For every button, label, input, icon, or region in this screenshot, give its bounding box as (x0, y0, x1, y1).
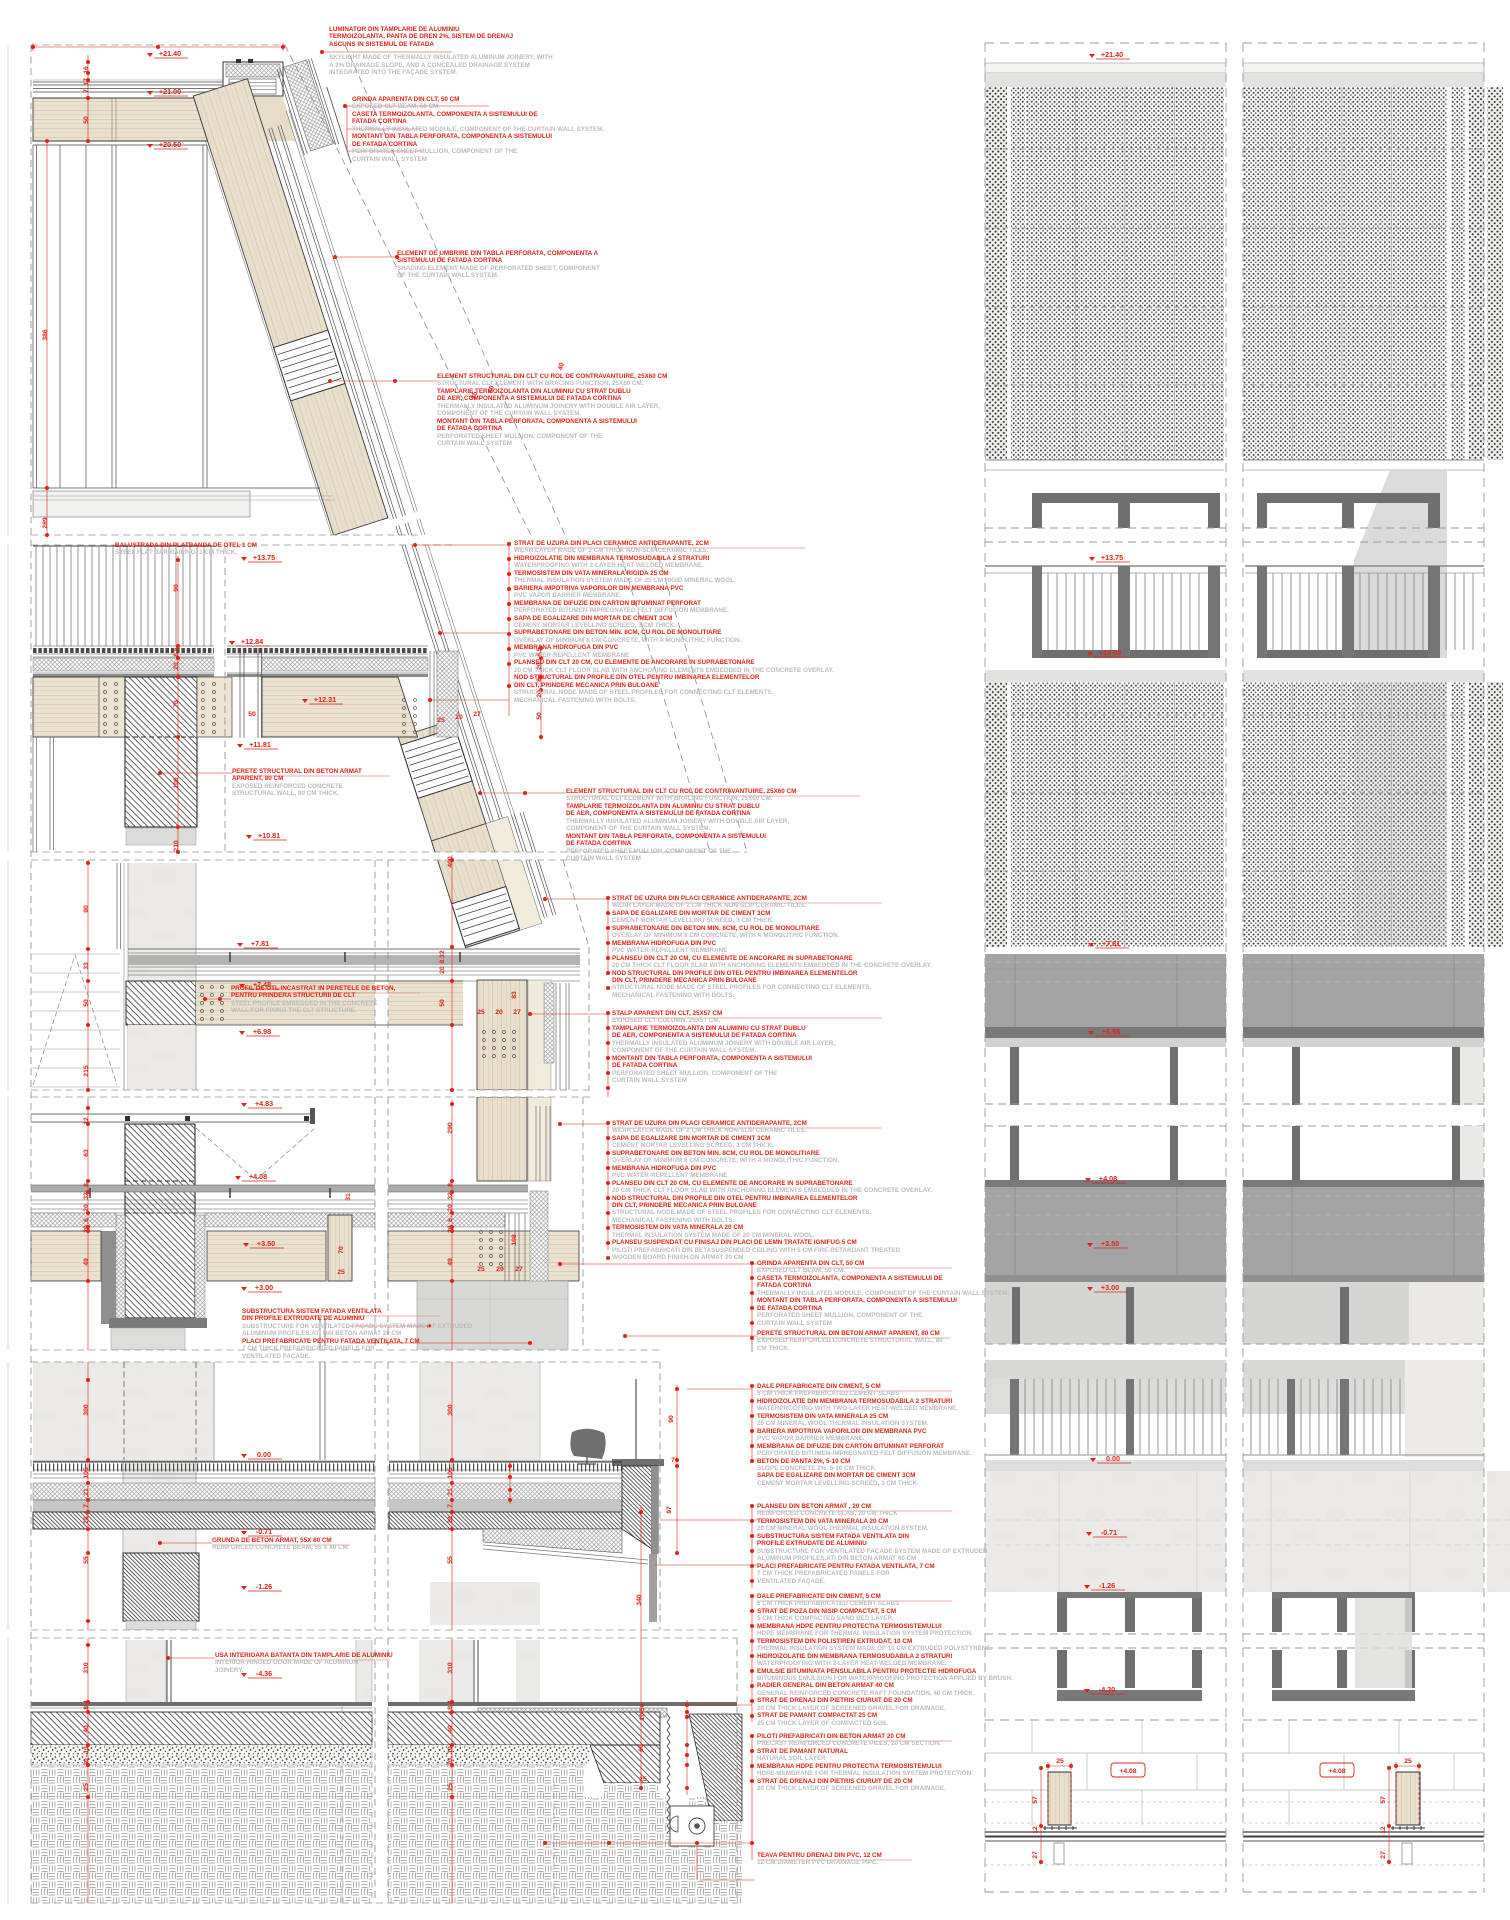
svg-text:32: 32 (447, 1192, 454, 1200)
svg-text:7: 7 (83, 89, 90, 93)
svg-text:40: 40 (83, 1725, 90, 1733)
svg-text:25: 25 (83, 1783, 90, 1791)
svg-text:20: 20 (495, 1009, 503, 1016)
svg-text:25: 25 (477, 1266, 485, 1273)
svg-text:7: 7 (447, 1504, 454, 1508)
svg-text:105: 105 (447, 1467, 454, 1479)
svg-text:+20.50: +20.50 (159, 140, 181, 149)
svg-text:0.00: 0.00 (1106, 1454, 1120, 1463)
svg-text:7: 7 (671, 1457, 675, 1464)
svg-text:50: 50 (83, 999, 90, 1007)
svg-text:+21.40: +21.40 (1101, 50, 1123, 59)
svg-text:+11.81: +11.81 (249, 740, 271, 749)
svg-text:17: 17 (83, 78, 90, 86)
svg-text:20: 20 (447, 1225, 454, 1233)
svg-text:6: 6 (83, 1218, 90, 1222)
svg-text:12: 12 (1032, 1826, 1039, 1834)
svg-text:7: 7 (83, 1504, 90, 1508)
svg-text:+21.00: +21.00 (159, 87, 181, 96)
svg-text:289: 289 (42, 517, 49, 529)
svg-text:49: 49 (83, 1258, 90, 1266)
svg-text:+10.81: +10.81 (258, 831, 280, 840)
svg-text:20: 20 (83, 1758, 90, 1766)
svg-text:+12.84: +12.84 (1099, 648, 1121, 657)
svg-text:12: 12 (83, 1117, 90, 1125)
svg-text:20: 20 (173, 662, 180, 670)
svg-text:8.4: 8.4 (447, 1700, 454, 1710)
svg-text:33: 33 (83, 962, 90, 970)
svg-text:+6.98: +6.98 (253, 1027, 271, 1036)
svg-text:25: 25 (447, 1783, 454, 1791)
svg-text:25: 25 (437, 717, 445, 724)
svg-text:70: 70 (338, 1246, 345, 1254)
svg-text:+7.81: +7.81 (251, 939, 269, 948)
svg-text:27: 27 (513, 1009, 521, 1016)
svg-text:90: 90 (173, 584, 180, 592)
svg-text:20: 20 (439, 966, 446, 974)
svg-text:+3.50: +3.50 (257, 1239, 275, 1248)
svg-text:97: 97 (666, 1506, 673, 1514)
svg-text:12: 12 (1380, 1826, 1387, 1834)
svg-text:8.4: 8.4 (83, 1700, 90, 1710)
svg-text:90: 90 (83, 905, 90, 913)
svg-text:50: 50 (248, 711, 256, 718)
svg-text:57: 57 (1380, 1796, 1387, 1804)
svg-text:20: 20 (447, 1204, 454, 1212)
svg-text:40: 40 (447, 1725, 454, 1733)
svg-text:20: 20 (83, 1225, 90, 1233)
svg-text:10: 10 (83, 1746, 90, 1754)
svg-text:70: 70 (173, 700, 180, 708)
svg-text:90: 90 (668, 1415, 675, 1423)
svg-text:+12.84: +12.84 (241, 637, 263, 646)
svg-text:+3.00: +3.00 (255, 1283, 273, 1292)
svg-text:310: 310 (447, 1662, 454, 1674)
svg-text:20: 20 (83, 1204, 90, 1212)
svg-text:25: 25 (337, 1269, 345, 1276)
svg-text:57: 57 (1032, 1796, 1039, 1804)
svg-text:300: 300 (83, 1404, 90, 1416)
svg-text:32: 32 (83, 1192, 90, 1200)
svg-text:+4.08: +4.08 (1119, 1768, 1136, 1775)
svg-text:21: 21 (83, 1488, 90, 1496)
svg-text:27: 27 (1032, 1851, 1039, 1859)
svg-text:290: 290 (447, 1122, 454, 1134)
svg-text:63: 63 (83, 1149, 90, 1157)
svg-text:25: 25 (1404, 1758, 1412, 1765)
svg-text:+4.08: +4.08 (249, 1172, 267, 1181)
svg-text:+4.83: +4.83 (255, 1099, 273, 1108)
svg-text:-0.71: -0.71 (256, 1527, 272, 1536)
svg-text:100: 100 (173, 777, 180, 789)
svg-text:108: 108 (511, 1234, 518, 1246)
svg-text:50: 50 (536, 712, 543, 720)
svg-text:20: 20 (447, 1758, 454, 1766)
svg-text:+3.00: +3.00 (1101, 1283, 1119, 1292)
svg-text:16: 16 (83, 66, 90, 74)
svg-text:83: 83 (511, 991, 518, 999)
svg-text:49: 49 (447, 1258, 454, 1266)
svg-text:8.5: 8.5 (173, 647, 180, 657)
svg-text:55: 55 (83, 1556, 90, 1564)
svg-text:+7.81: +7.81 (1102, 939, 1120, 948)
svg-text:210: 210 (173, 840, 180, 852)
svg-text:25: 25 (639, 1776, 647, 1783)
svg-text:400: 400 (447, 856, 454, 868)
svg-text:340: 340 (636, 1594, 643, 1606)
svg-text:10: 10 (447, 1746, 454, 1754)
svg-text:215: 215 (83, 1065, 90, 1077)
svg-text:-1.26: -1.26 (256, 1582, 272, 1591)
svg-text:8: 8 (447, 1183, 454, 1187)
svg-text:50: 50 (83, 116, 90, 124)
svg-text:6: 6 (447, 1218, 454, 1222)
svg-text:+12.31: +12.31 (314, 695, 336, 704)
svg-text:28: 28 (447, 1516, 454, 1524)
svg-text:8: 8 (83, 1183, 90, 1187)
svg-text:28: 28 (83, 1516, 90, 1524)
svg-text:31: 31 (345, 1193, 352, 1201)
svg-text:60: 60 (638, 1744, 645, 1752)
svg-text:+4.08: +4.08 (1099, 1174, 1117, 1183)
svg-text:27: 27 (473, 711, 481, 718)
svg-text:27: 27 (515, 1266, 523, 1273)
svg-text:-0.71: -0.71 (1101, 1528, 1117, 1537)
svg-text:40: 40 (557, 362, 566, 372)
svg-text:21: 21 (447, 1488, 454, 1496)
svg-text:27: 27 (1380, 1851, 1387, 1859)
svg-text:-4.20: -4.20 (1099, 1685, 1115, 1694)
svg-text:55: 55 (447, 1556, 454, 1564)
svg-text:25: 25 (477, 1009, 485, 1016)
svg-text:+4.08: +4.08 (1328, 1768, 1345, 1775)
svg-text:310: 310 (83, 1662, 90, 1674)
svg-text:+3.50: +3.50 (1101, 1239, 1119, 1248)
svg-text:25: 25 (1056, 1758, 1064, 1765)
svg-text:0.00: 0.00 (257, 1450, 271, 1459)
svg-text:+6.98: +6.98 (1102, 1027, 1120, 1036)
svg-text:+21.40: +21.40 (159, 49, 181, 58)
svg-text:29: 29 (496, 1266, 504, 1273)
svg-text:+13.75: +13.75 (1101, 553, 1123, 562)
svg-text:10.56: 10.56 (639, 1703, 646, 1720)
svg-text:105: 105 (83, 1467, 90, 1479)
svg-text:8.32: 8.32 (439, 950, 446, 963)
svg-text:300: 300 (447, 1404, 454, 1416)
svg-text:-1.26: -1.26 (1099, 1581, 1115, 1590)
svg-text:20: 20 (455, 714, 463, 721)
svg-text:50: 50 (439, 999, 446, 1007)
svg-text:386: 386 (42, 329, 49, 341)
